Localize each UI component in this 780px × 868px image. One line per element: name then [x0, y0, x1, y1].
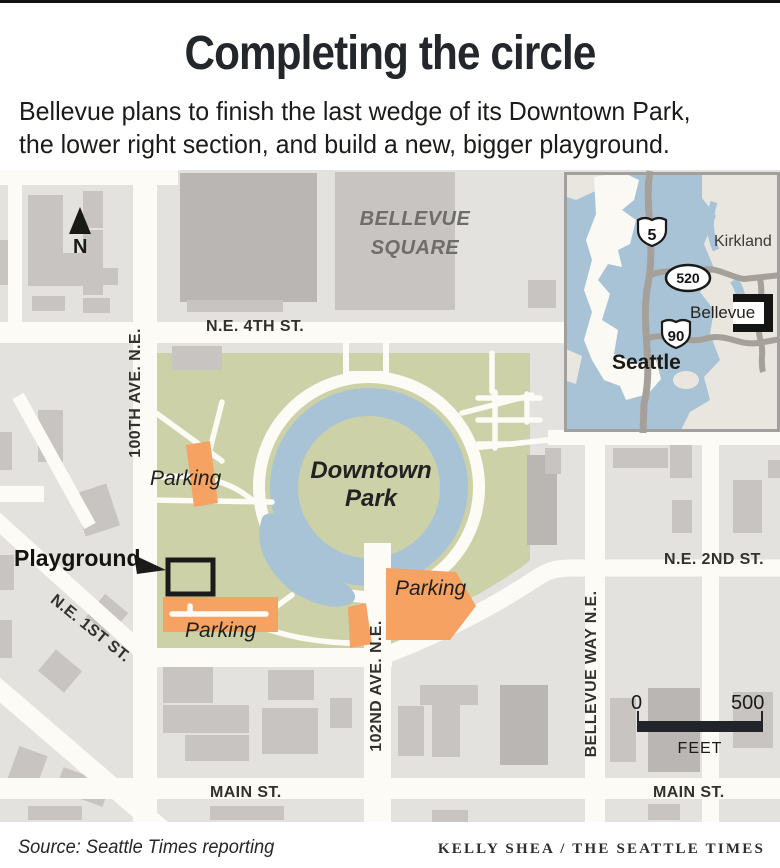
route-shield-520: 520 — [666, 265, 710, 291]
street-label-100th-ave: 100TH AVE. N.E. — [127, 328, 145, 458]
subtitle-line-2: the lower right section, and build a new… — [19, 129, 670, 160]
street-label-main-east: MAIN ST. — [653, 784, 725, 802]
inset-label-seattle: Seattle — [612, 351, 681, 375]
source-line: Source: Seattle Times reporting — [18, 837, 274, 859]
street-100th-ave — [133, 170, 157, 822]
north-label: N — [73, 236, 87, 259]
park-name-label-2: Park — [286, 485, 456, 513]
page-title: Completing the circle — [47, 26, 733, 81]
street-west-stub — [0, 486, 44, 502]
svg-text:520: 520 — [676, 270, 700, 286]
svg-text:5: 5 — [648, 227, 657, 244]
street-park-south — [140, 648, 392, 667]
subtitle-line-1: Bellevue plans to finish the last wedge … — [19, 96, 691, 127]
top-rule — [0, 0, 780, 3]
scale-unit-label: FEET — [637, 740, 763, 758]
bellevue-square-label-2: SQUARE — [345, 237, 485, 260]
scale-bar — [637, 721, 763, 732]
inset-label-kirkland: Kirkland — [714, 233, 772, 251]
street-label-102nd-ave: 102ND AVE. N.E. — [368, 620, 386, 751]
bellevue-square-label-1: BELLEVUE — [345, 208, 485, 231]
street-103rd — [702, 433, 719, 822]
inset-map: 5 520 90 — [564, 171, 780, 433]
park-name-label-1: Downtown — [286, 457, 456, 485]
scale-tick-right — [761, 711, 763, 722]
parking-label-nw: Parking — [150, 467, 221, 491]
scale-max: 500 — [731, 692, 764, 715]
street-label-ne-2nd: N.E. 2ND ST. — [664, 551, 764, 569]
playground-rect — [168, 560, 213, 594]
street-left-vertical — [8, 170, 22, 330]
byline: KELLY SHEA / THE SEATTLE TIMES — [438, 841, 765, 858]
playground-label: Playground — [14, 545, 141, 572]
inset-label-bellevue: Bellevue — [690, 303, 755, 323]
parking-label-se: Parking — [395, 577, 466, 601]
street-label-bellevue-way: BELLEVUE WAY N.E. — [583, 591, 601, 758]
street-label-main-west: MAIN ST. — [210, 784, 282, 802]
street-below-inset — [548, 430, 780, 445]
scale-tick-left — [637, 711, 639, 722]
infographic: Completing the circle Bellevue plans to … — [0, 0, 780, 868]
street-label-ne-4th: N.E. 4TH ST. — [206, 318, 304, 336]
building-in-park — [172, 346, 222, 370]
north-arrow-icon — [69, 207, 91, 234]
parking-label-sw: Parking — [185, 619, 256, 643]
svg-text:90: 90 — [668, 328, 685, 345]
